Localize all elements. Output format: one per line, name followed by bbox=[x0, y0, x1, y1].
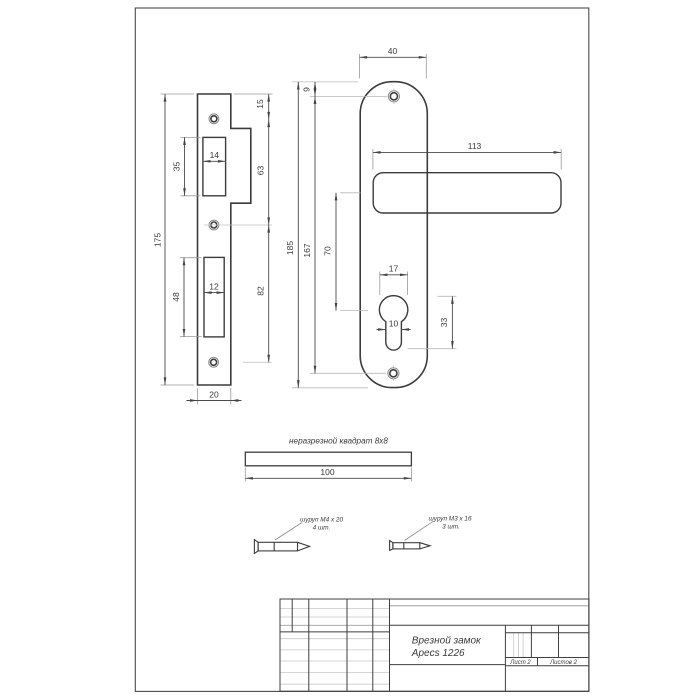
svg-text:Apecs 1226: Apecs 1226 bbox=[411, 648, 465, 659]
svg-text:4 шт.: 4 шт. bbox=[313, 525, 331, 532]
svg-text:10: 10 bbox=[389, 318, 399, 328]
svg-text:40: 40 bbox=[388, 46, 398, 56]
svg-text:шуруп М3 х 16: шуруп М3 х 16 bbox=[428, 516, 472, 523]
svg-text:12: 12 bbox=[209, 281, 219, 291]
svg-text:100: 100 bbox=[320, 467, 334, 477]
svg-text:33: 33 bbox=[439, 318, 449, 328]
svg-text:9: 9 bbox=[302, 87, 312, 92]
svg-text:82: 82 bbox=[256, 286, 266, 296]
svg-text:3 шт.: 3 шт. bbox=[442, 524, 460, 531]
svg-text:35: 35 bbox=[172, 162, 182, 172]
svg-text:113: 113 bbox=[468, 141, 482, 151]
svg-text:175: 175 bbox=[153, 233, 163, 247]
svg-text:63: 63 bbox=[256, 166, 266, 176]
svg-text:неразрезной квадрат 8х8: неразрезной квадрат 8х8 bbox=[289, 437, 388, 446]
svg-text:20: 20 bbox=[209, 389, 219, 399]
svg-text:70: 70 bbox=[323, 246, 333, 256]
svg-text:Лист 2: Лист 2 bbox=[509, 660, 531, 666]
svg-text:Врезной замок: Врезной замок bbox=[412, 636, 482, 647]
svg-text:17: 17 bbox=[389, 264, 399, 274]
svg-text:185: 185 bbox=[285, 241, 295, 255]
svg-text:Листов 2: Листов 2 bbox=[549, 660, 578, 666]
svg-text:14: 14 bbox=[210, 150, 220, 160]
svg-text:шуруп М4 х 20: шуруп М4 х 20 bbox=[300, 517, 344, 524]
svg-text:15: 15 bbox=[255, 99, 265, 109]
svg-text:48: 48 bbox=[171, 292, 181, 302]
svg-text:167: 167 bbox=[302, 243, 312, 257]
